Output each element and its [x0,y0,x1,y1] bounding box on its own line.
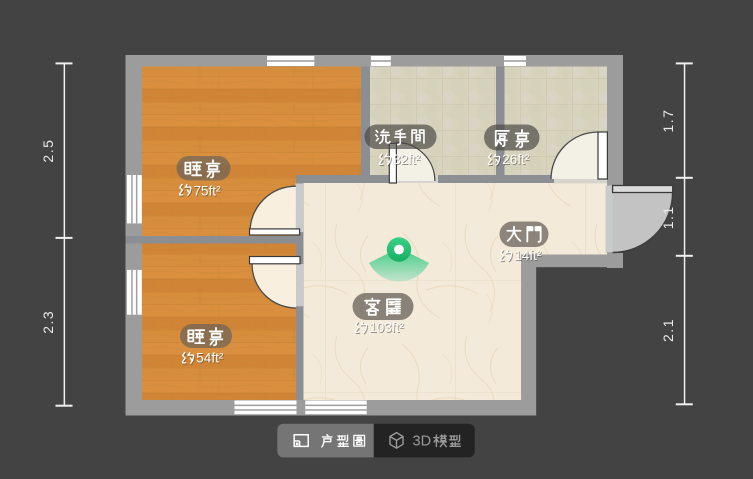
svg-text:1.7: 1.7 [660,109,676,133]
svg-text:2.3: 2.3 [40,310,56,334]
svg-text:2.5: 2.5 [40,139,56,163]
svg-text:32ft²: 32ft² [393,152,421,167]
svg-text:14ft²: 14ft² [514,248,542,263]
svg-text:75ft²: 75ft² [194,184,222,199]
svg-text:3D: 3D [413,434,432,450]
svg-text:26ft²: 26ft² [502,152,530,167]
svg-text:1.1: 1.1 [660,205,676,229]
svg-text:103ft²: 103ft² [369,320,404,335]
svg-text:54ft²: 54ft² [196,351,224,366]
svg-text:2.1: 2.1 [660,318,676,342]
